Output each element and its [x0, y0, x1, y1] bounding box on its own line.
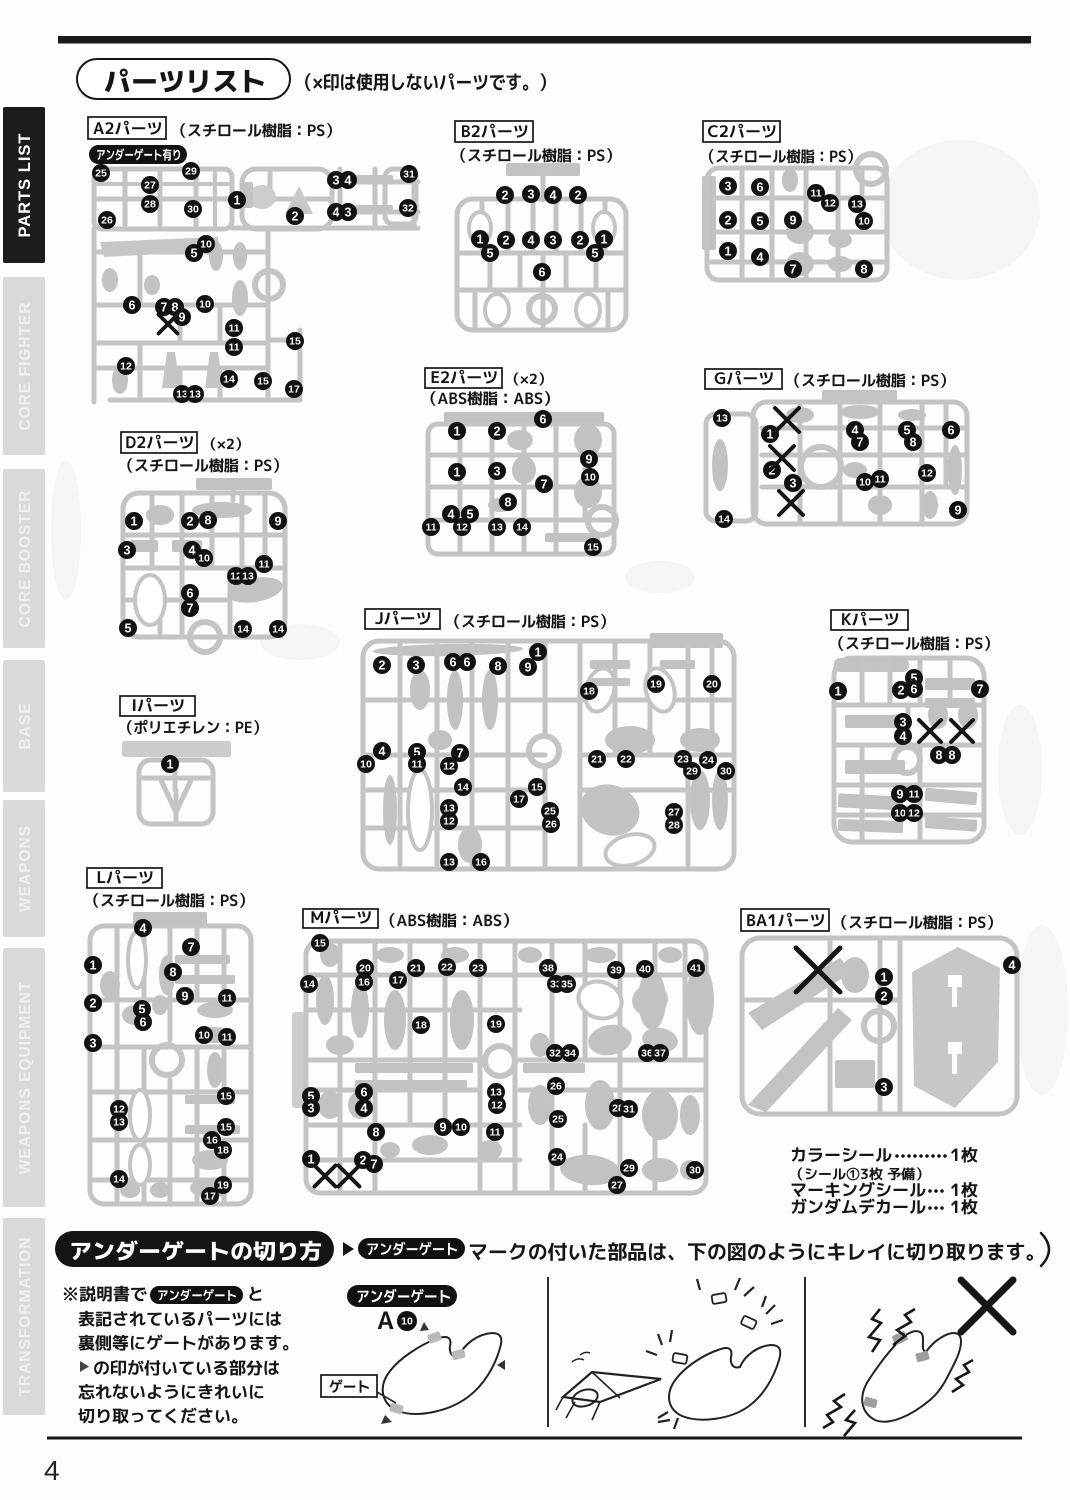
svg-text:9: 9	[586, 452, 593, 466]
svg-text:14: 14	[237, 624, 249, 636]
svg-text:WEAPONS EQUIPMENT: WEAPONS EQUIPMENT	[17, 981, 34, 1175]
svg-text:3: 3	[413, 658, 420, 672]
svg-text:10: 10	[859, 477, 871, 489]
svg-text:4: 4	[1009, 958, 1016, 972]
svg-text:10: 10	[455, 1122, 467, 1134]
svg-text:12: 12	[443, 816, 455, 828]
svg-text:BASE: BASE	[17, 702, 34, 749]
svg-text:26: 26	[101, 215, 113, 227]
svg-text:11: 11	[489, 1127, 500, 1139]
svg-text:16: 16	[358, 977, 370, 989]
svg-text:39: 39	[610, 965, 622, 977]
svg-text:15: 15	[220, 1122, 232, 1134]
svg-text:13: 13	[443, 857, 455, 869]
svg-text:11: 11	[221, 1032, 232, 1044]
svg-text:1: 1	[167, 757, 174, 771]
svg-text:13: 13	[716, 413, 728, 425]
svg-text:1: 1	[601, 232, 608, 246]
svg-text:20: 20	[359, 963, 371, 975]
svg-text:CORE FIGHTER: CORE FIGHTER	[17, 301, 34, 430]
svg-text:2: 2	[575, 188, 582, 202]
svg-text:17: 17	[204, 1191, 216, 1203]
svg-text:2: 2	[577, 233, 584, 247]
svg-text:11: 11	[228, 323, 239, 335]
svg-text:13: 13	[242, 571, 254, 583]
svg-text:11: 11	[221, 993, 232, 1005]
svg-text:7: 7	[187, 601, 194, 615]
svg-text:30: 30	[689, 1165, 701, 1177]
svg-text:19: 19	[490, 1019, 502, 1031]
svg-text:6: 6	[140, 1015, 147, 1029]
svg-text:3: 3	[881, 1080, 888, 1094]
svg-text:18: 18	[217, 1145, 229, 1157]
svg-text:3: 3	[550, 233, 557, 247]
svg-text:8: 8	[910, 435, 917, 449]
svg-text:6: 6	[911, 682, 918, 696]
svg-text:9: 9	[182, 989, 189, 1003]
svg-text:1: 1	[90, 958, 97, 972]
svg-text:15: 15	[531, 782, 543, 794]
svg-text:28: 28	[144, 199, 156, 211]
svg-text:14: 14	[718, 514, 730, 526]
svg-text:12: 12	[120, 361, 132, 373]
svg-text:2: 2	[187, 514, 194, 528]
svg-text:6: 6	[464, 655, 471, 669]
svg-text:20: 20	[706, 679, 718, 691]
svg-text:15: 15	[587, 542, 599, 554]
svg-text:2: 2	[90, 996, 97, 1010]
svg-text:12: 12	[908, 808, 920, 820]
svg-text:17: 17	[288, 384, 300, 396]
svg-text:7: 7	[541, 477, 548, 491]
svg-text:4: 4	[550, 188, 557, 202]
svg-text:TRANSFORMATION: TRANSFORMATION	[17, 1236, 34, 1396]
svg-text:8: 8	[949, 748, 956, 762]
svg-text:1: 1	[477, 232, 484, 246]
svg-text:10: 10	[401, 1316, 413, 1328]
svg-text:21: 21	[410, 963, 422, 975]
svg-text:24: 24	[702, 755, 714, 767]
svg-text:8: 8	[205, 513, 212, 527]
svg-text:38: 38	[542, 963, 554, 975]
svg-text:3: 3	[528, 187, 535, 201]
svg-text:5: 5	[125, 621, 132, 635]
svg-text:24: 24	[551, 1152, 563, 1164]
svg-text:4: 4	[379, 744, 386, 758]
svg-text:13: 13	[189, 389, 201, 401]
svg-text:3: 3	[790, 476, 797, 490]
svg-text:10: 10	[199, 299, 211, 311]
svg-text:15: 15	[289, 336, 301, 348]
svg-text:1: 1	[454, 465, 461, 479]
svg-text:8: 8	[373, 1125, 380, 1139]
svg-text:17: 17	[392, 975, 404, 987]
svg-text:10: 10	[894, 808, 906, 820]
svg-text:15: 15	[314, 938, 326, 950]
svg-text:6: 6	[361, 1085, 368, 1099]
svg-text:31: 31	[623, 1104, 635, 1116]
svg-text:18: 18	[415, 1020, 427, 1032]
svg-text:12: 12	[921, 468, 933, 480]
svg-text:25: 25	[552, 1114, 564, 1126]
svg-text:31: 31	[403, 169, 415, 181]
svg-text:5: 5	[592, 246, 599, 260]
svg-text:PARTS LIST: PARTS LIST	[16, 132, 34, 237]
svg-text:14: 14	[516, 522, 528, 534]
svg-text:11: 11	[425, 522, 436, 534]
svg-text:3: 3	[725, 179, 732, 193]
svg-text:9: 9	[179, 310, 186, 324]
svg-text:4: 4	[900, 729, 907, 743]
svg-text:7: 7	[790, 262, 797, 276]
svg-text:4: 4	[189, 543, 196, 557]
svg-text:16: 16	[475, 857, 487, 869]
svg-text:40: 40	[639, 964, 651, 976]
svg-text:22: 22	[620, 754, 632, 766]
svg-text:10: 10	[858, 216, 870, 228]
svg-text:22: 22	[441, 962, 453, 974]
svg-text:13: 13	[491, 522, 503, 534]
svg-text:11: 11	[810, 188, 821, 200]
svg-text:4: 4	[528, 233, 535, 247]
svg-text:26: 26	[550, 1081, 562, 1093]
svg-text:11: 11	[908, 789, 919, 801]
svg-text:13: 13	[113, 1117, 125, 1129]
svg-text:1: 1	[131, 514, 138, 528]
svg-text:8: 8	[495, 659, 502, 673]
svg-text:6: 6	[540, 412, 547, 426]
svg-text:4: 4	[333, 205, 340, 219]
svg-text:4: 4	[44, 1455, 60, 1486]
svg-text:CORE BOOSTER: CORE BOOSTER	[17, 490, 34, 628]
svg-text:5: 5	[757, 214, 764, 228]
svg-text:10: 10	[584, 472, 596, 484]
svg-text:30: 30	[720, 766, 732, 778]
svg-text:2: 2	[725, 213, 732, 227]
svg-text:2: 2	[503, 233, 510, 247]
svg-text:19: 19	[217, 1180, 229, 1192]
svg-text:9: 9	[955, 503, 962, 517]
svg-text:11: 11	[411, 759, 422, 771]
svg-text:4: 4	[345, 173, 352, 187]
svg-text:28: 28	[668, 820, 680, 832]
svg-text:5: 5	[487, 246, 494, 260]
svg-text:2: 2	[379, 658, 386, 672]
svg-text:9: 9	[525, 660, 532, 674]
svg-text:3: 3	[124, 543, 131, 557]
svg-text:3: 3	[494, 464, 501, 478]
svg-text:8: 8	[861, 262, 868, 276]
svg-text:29: 29	[623, 1163, 635, 1175]
svg-text:1: 1	[835, 684, 842, 698]
svg-text:8: 8	[936, 748, 943, 762]
svg-text:23: 23	[472, 963, 484, 975]
svg-text:1: 1	[535, 645, 542, 659]
svg-text:6: 6	[129, 298, 136, 312]
svg-text:8: 8	[170, 965, 177, 979]
svg-text:2: 2	[898, 683, 905, 697]
svg-text:7: 7	[371, 1157, 378, 1171]
svg-text:4: 4	[361, 1101, 368, 1115]
svg-text:14: 14	[457, 782, 469, 794]
svg-text:6: 6	[757, 180, 764, 194]
svg-text:26: 26	[545, 819, 557, 831]
svg-text:2: 2	[494, 424, 501, 438]
svg-text:14: 14	[303, 979, 315, 991]
svg-text:9: 9	[790, 213, 797, 227]
svg-text:41: 41	[690, 963, 702, 975]
svg-text:3: 3	[333, 173, 340, 187]
svg-text:17: 17	[513, 794, 525, 806]
svg-text:6: 6	[948, 423, 955, 437]
svg-text:1: 1	[234, 193, 241, 207]
svg-text:1: 1	[767, 427, 774, 441]
svg-text:13: 13	[851, 199, 863, 211]
svg-text:4: 4	[757, 250, 764, 264]
svg-text:10: 10	[360, 759, 372, 771]
svg-text:7: 7	[977, 682, 984, 696]
svg-text:11: 11	[258, 559, 269, 571]
svg-text:9: 9	[440, 1120, 447, 1134]
svg-text:30: 30	[187, 204, 199, 216]
svg-text:6: 6	[450, 655, 457, 669]
svg-text:29: 29	[185, 166, 197, 178]
svg-text:10: 10	[198, 1030, 210, 1042]
svg-text:32: 32	[402, 203, 414, 215]
svg-text:2: 2	[502, 188, 509, 202]
svg-text:12: 12	[824, 198, 836, 210]
svg-text:7: 7	[457, 746, 464, 760]
svg-text:6: 6	[539, 265, 546, 279]
svg-text:14: 14	[113, 1174, 125, 1186]
svg-text:1: 1	[725, 244, 732, 258]
svg-text:11: 11	[874, 474, 885, 486]
svg-text:3: 3	[345, 205, 352, 219]
svg-text:7: 7	[857, 435, 864, 449]
svg-text:WEAPONS: WEAPONS	[17, 825, 34, 912]
svg-text:15: 15	[257, 376, 269, 388]
svg-text:21: 21	[591, 754, 603, 766]
svg-text:1: 1	[881, 970, 888, 984]
svg-text:19: 19	[650, 679, 662, 691]
svg-text:9: 9	[275, 514, 282, 528]
svg-text:3: 3	[90, 1036, 97, 1050]
svg-text:2: 2	[881, 989, 888, 1003]
svg-text:4: 4	[140, 921, 147, 935]
svg-text:5: 5	[191, 246, 198, 260]
svg-text:3: 3	[308, 1101, 315, 1115]
svg-text:2: 2	[292, 209, 299, 223]
svg-text:27: 27	[144, 180, 156, 192]
svg-text:35: 35	[561, 979, 573, 991]
svg-text:12: 12	[456, 522, 468, 534]
svg-text:29: 29	[686, 766, 698, 778]
svg-text:7: 7	[188, 940, 195, 954]
svg-text:14: 14	[272, 624, 284, 636]
svg-text:27: 27	[611, 1180, 623, 1192]
svg-text:12: 12	[443, 761, 455, 773]
svg-text:12: 12	[491, 1100, 503, 1112]
svg-text:37: 37	[654, 1048, 666, 1060]
svg-text:25: 25	[95, 168, 107, 180]
svg-text:10: 10	[198, 553, 210, 565]
svg-text:9: 9	[897, 787, 904, 801]
svg-text:4: 4	[448, 507, 455, 521]
svg-text:18: 18	[583, 686, 595, 698]
svg-text:1: 1	[454, 424, 461, 438]
svg-text:14: 14	[223, 374, 235, 386]
svg-text:34: 34	[564, 1048, 576, 1060]
svg-text:11: 11	[228, 342, 239, 354]
svg-text:6: 6	[187, 586, 194, 600]
svg-text:8: 8	[505, 495, 512, 509]
svg-text:32: 32	[549, 1048, 561, 1060]
svg-text:5: 5	[467, 507, 474, 521]
svg-text:15: 15	[220, 1091, 232, 1103]
